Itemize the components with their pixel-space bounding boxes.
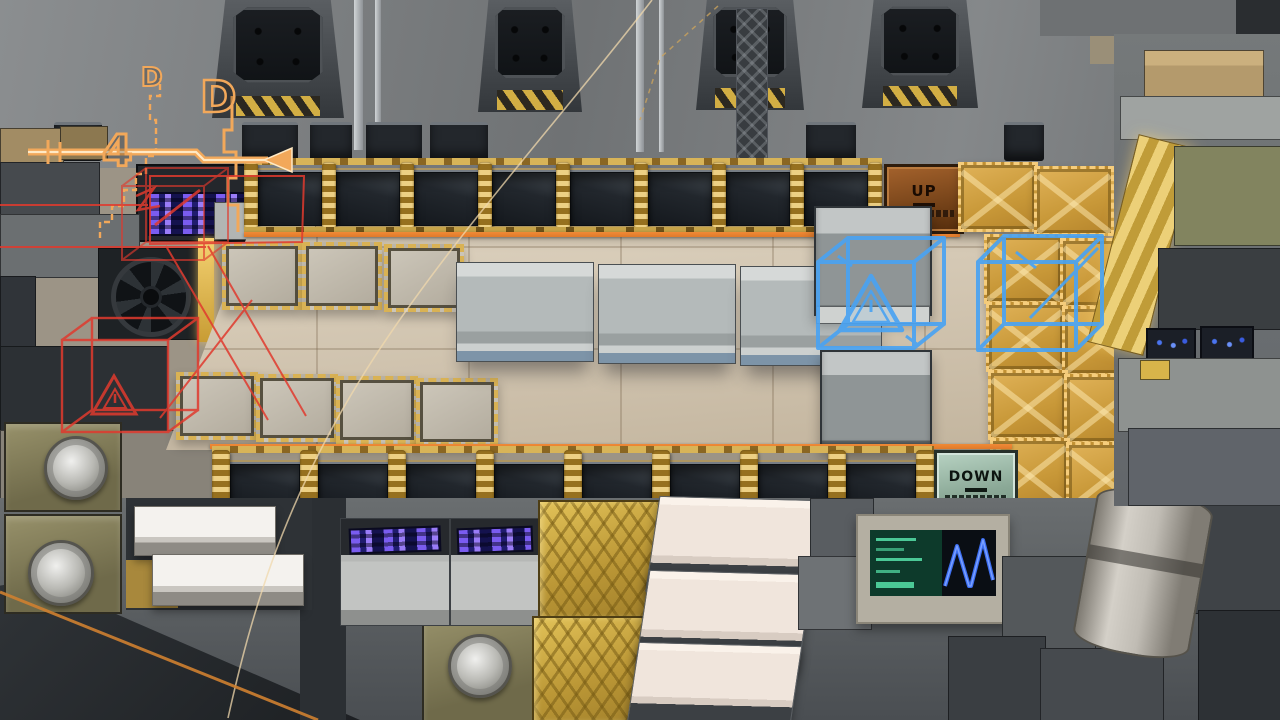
pit-hatch[interactable] (492, 170, 556, 226)
terminal-line (876, 548, 904, 551)
vent-panel (1004, 122, 1044, 161)
white-slab[interactable] (152, 554, 304, 606)
support-pole (354, 0, 363, 150)
gold-light-strip (198, 238, 214, 342)
wall-block (0, 162, 100, 216)
waveform-icon (942, 530, 996, 596)
gray-crate[interactable] (1040, 648, 1164, 720)
terminal-line (876, 538, 916, 541)
gray-block-lower[interactable] (820, 350, 932, 450)
terminal-line (876, 558, 922, 561)
pillar-panel (495, 7, 566, 79)
dark-panel (1158, 248, 1280, 330)
tan-crate[interactable] (0, 128, 64, 166)
framed-plate-tile[interactable] (222, 242, 302, 310)
framed-plate-tile[interactable] (384, 244, 464, 312)
terminal-line (876, 570, 900, 573)
fan-icon (111, 257, 191, 337)
welder-block[interactable] (4, 422, 122, 512)
chain-pillar (712, 162, 726, 230)
olive-block[interactable] (1174, 146, 1280, 246)
game-scene: UP (0, 0, 1280, 720)
wall-block (0, 276, 36, 348)
framed-plate-tile[interactable] (176, 372, 258, 440)
pit-hatch[interactable] (726, 170, 790, 226)
elevator-up-label: UP (911, 182, 936, 200)
gray-shelf (1128, 428, 1280, 506)
pit-hatch[interactable] (570, 170, 634, 226)
pillar-4 (862, 0, 978, 108)
welder-disc-icon (448, 634, 512, 698)
indicator-screen (1146, 328, 1196, 360)
glyph-screen (457, 526, 534, 555)
hazard-zone-tile[interactable] (984, 234, 1064, 304)
cargo-slab[interactable] (456, 262, 594, 362)
chain-pillar (790, 162, 804, 230)
welder-block[interactable] (4, 514, 122, 614)
hatch-row-top (244, 158, 882, 234)
dark-machinery (0, 346, 168, 434)
pillar-1 (212, 0, 344, 118)
pit-hatch[interactable] (258, 170, 322, 226)
gold-tag (1140, 360, 1170, 380)
gray-shelf (1120, 96, 1280, 140)
chain-pillar (556, 162, 570, 230)
top-right-structure (1040, 0, 1240, 36)
hazard-chevrons (497, 90, 564, 110)
tan-crate[interactable] (60, 126, 108, 160)
chain-pillar (244, 162, 258, 230)
indicator-screen (1200, 326, 1254, 360)
pillar-2 (478, 0, 582, 112)
white-slab[interactable] (134, 506, 276, 556)
hazard-zone-tile[interactable] (986, 302, 1066, 372)
silver-step (816, 306, 930, 324)
hazard-zone-tile[interactable] (988, 370, 1068, 440)
waveform-screen (942, 530, 996, 596)
vent-panel (806, 122, 856, 161)
status-monitor[interactable] (856, 514, 1010, 624)
fan-block[interactable] (98, 248, 204, 340)
gray-crate[interactable] (1198, 610, 1280, 720)
gray-crate[interactable] (948, 636, 1046, 720)
pillar-panel (881, 6, 960, 75)
pillar-panel (233, 7, 323, 83)
hazard-zone-tile[interactable] (1034, 166, 1114, 236)
chain-pillar (400, 162, 414, 230)
support-pole (659, 0, 664, 152)
cargo-slab[interactable] (598, 264, 736, 364)
vent-panel (242, 122, 298, 161)
support-pole (636, 0, 644, 152)
framed-plate-tile[interactable] (256, 374, 338, 442)
vent-panel (366, 122, 422, 161)
vent-panel (310, 122, 352, 161)
pit-hatch[interactable] (648, 170, 712, 226)
hazard-zone-tile[interactable] (958, 162, 1038, 232)
terminal-block (876, 582, 914, 588)
elevator-down-label: DOWN (949, 469, 1004, 485)
gray-block-upper[interactable] (814, 206, 932, 316)
pit-hatch[interactable] (336, 170, 400, 226)
framed-plate-tile[interactable] (336, 376, 418, 444)
welder-disc-icon (28, 540, 94, 606)
chain-pillar (634, 162, 648, 230)
cream-slab[interactable] (626, 642, 803, 720)
vent-panel (430, 122, 488, 161)
pit-hatch[interactable] (414, 170, 478, 226)
tan-crate[interactable] (1144, 50, 1264, 100)
welder-disc-icon (44, 436, 108, 500)
processor-machine[interactable] (340, 518, 450, 626)
chain-pillar (478, 162, 492, 230)
hazard-chevrons (236, 96, 321, 116)
scaffold-tower (736, 8, 768, 160)
glyph-screen (349, 525, 442, 554)
terminal-screen (870, 530, 942, 596)
processor-machine[interactable] (450, 518, 540, 626)
elevator-divider (965, 488, 987, 492)
framed-plate-tile[interactable] (416, 378, 498, 446)
framed-plate-tile[interactable] (302, 242, 382, 310)
chain-pillar (322, 162, 336, 230)
hazard-chevrons (883, 86, 957, 106)
